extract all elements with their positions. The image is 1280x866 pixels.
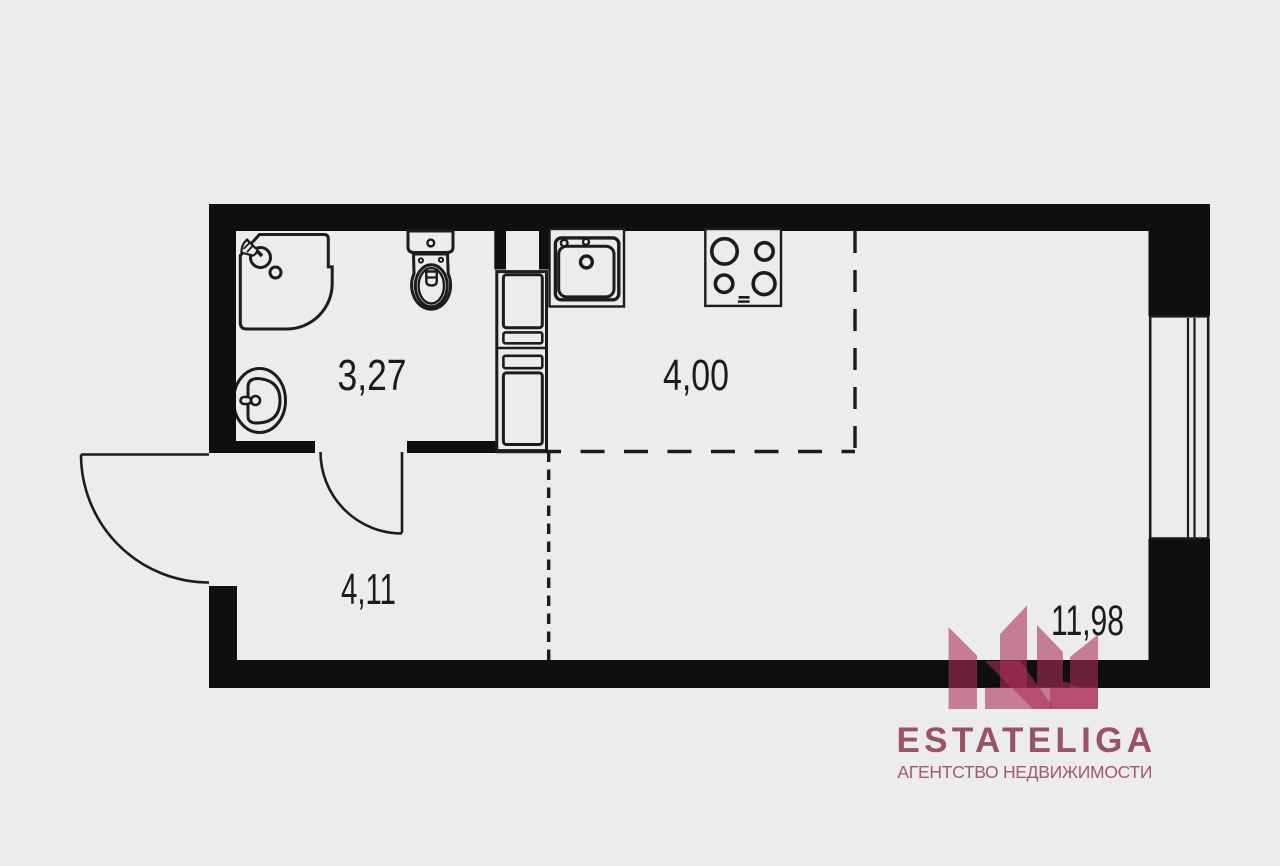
svg-text:3,27: 3,27: [338, 352, 407, 400]
svg-text:11,98: 11,98: [1051, 598, 1124, 645]
svg-text:АГЕНТСТВО НЕДВИЖИМОСТИ: АГЕНТСТВО НЕДВИЖИМОСТИ: [897, 762, 1152, 782]
svg-text:4,11: 4,11: [341, 565, 396, 614]
svg-text:4,00: 4,00: [663, 352, 729, 400]
